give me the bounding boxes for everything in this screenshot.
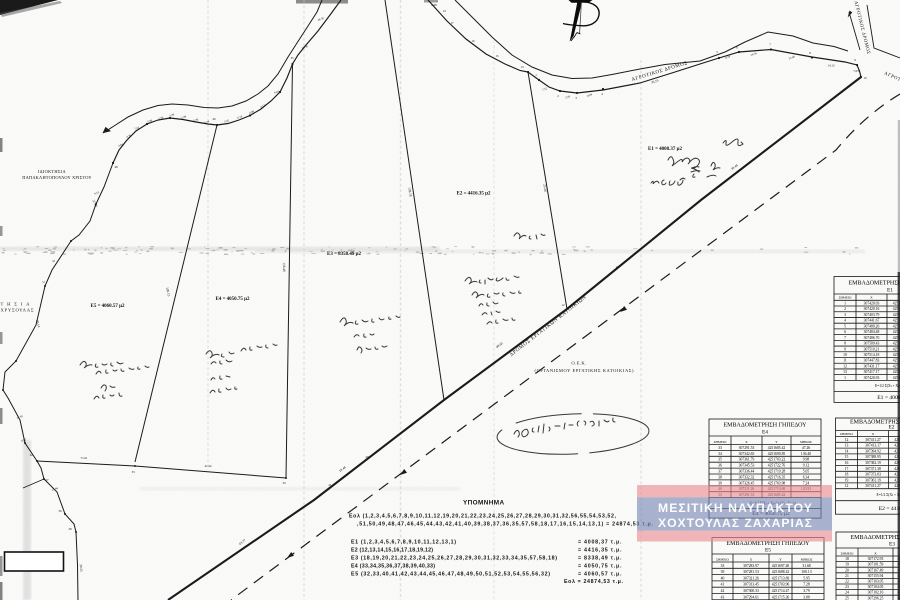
svg-text:307321.26: 307321.26 [743,576,759,580]
svg-text:ΣΗΜΕΙΟ: ΣΗΜΕΙΟ [839,296,852,300]
svg-text:Ε2: Ε2 [889,425,895,431]
svg-text:(ΟΡΓΑΝΙΣΜΟΥ ΕΡΓΑΤΙΚΗΣ ΚΑΤΟΙΚΙΑ: (ΟΡΓΑΝΙΣΜΟΥ ΕΡΓΑΤΙΚΗΣ ΚΑΤΟΙΚΙΑΣ) [535,368,635,373]
svg-text:33: 33 [718,446,722,450]
svg-text:= 4008,37 τ.μ.: = 4008,37 τ.μ. [578,540,622,546]
svg-text:19: 19 [845,478,849,482]
svg-text:Ε5 (32,33,40,41,42,43,44,45,46: Ε5 (32,33,40,41,42,43,44,45,46,47,48,49,… [351,572,550,578]
svg-text:ΧΟΧΤΟΥΛΑΣ ΖΑΧΑΡΙΑΣ: ΧΟΧΤΟΥΛΑΣ ΖΑΧΑΡΙΑΣ [658,516,813,530]
svg-text:12: 12 [561,303,565,307]
svg-text:= 8338,49 τ.μ.: = 8338,49 τ.μ. [578,556,622,562]
svg-text:7.24: 7.24 [803,481,810,485]
svg-text:21: 21 [328,483,332,487]
svg-text:307382.19: 307382.19 [865,461,881,465]
svg-text:71.61: 71.61 [81,456,88,460]
svg-text:4251703.98: 4251703.98 [768,481,786,485]
svg-text:4251685.42: 4251685.42 [768,446,786,450]
svg-text:307441.67: 307441.67 [864,319,880,323]
svg-text:Ε2 (12,13,14,15,16,17,18,19,12: Ε2 (12,13,14,15,16,17,18,19,12) [351,548,433,554]
svg-text:4251703.96: 4251703.96 [772,583,790,587]
svg-text:307514.18: 307514.18 [864,353,880,357]
svg-text:ΠΑΠΑΚΛΗΤΟΠΟΥΛΟΥ ΧΡΙΣΤΟΥ: ΠΑΠΑΚΛΗΤΟΠΟΥΛΟΥ ΧΡΙΣΤΟΥ [22,175,92,180]
svg-text:ΙΔΙΟΚΤΗΣΙΑ: ΙΔΙΟΚΤΗΣΙΑ [38,169,66,174]
svg-text:4251715.90: 4251715.90 [893,353,900,357]
svg-text:307103.05: 307103.05 [868,580,884,584]
svg-text:40: 40 [721,576,725,580]
svg-text:100.13: 100.13 [801,570,811,574]
svg-text:4251648.22: 4251648.22 [894,478,900,482]
svg-text:307420.03: 307420.03 [864,302,880,306]
svg-text:2: 2 [844,307,846,311]
svg-text:4251722.76: 4251722.76 [768,464,786,468]
svg-text:4251715.36: 4251715.36 [772,595,790,599]
svg-text:Εολ = 24874,53 τ.μ.: Εολ = 24874,53 τ.μ. [564,579,624,585]
svg-text:Ε=1/2 Σ(Χι + Χι+1)·(Υι - Υι+1): Ε=1/2 Σ(Χι + Χι+1)·(Υι - Υι+1) [875,384,900,388]
svg-text:307313.45: 307313.45 [743,583,759,587]
svg-text:4251697.40: 4251697.40 [772,564,790,568]
svg-text:5.05: 5.05 [803,470,810,474]
svg-text:40: 40 [212,117,216,121]
svg-text:4251650.21: 4251650.21 [893,359,900,363]
svg-text:307361.79: 307361.79 [739,458,755,462]
svg-text:20: 20 [845,568,849,572]
svg-text:11: 11 [616,265,619,269]
svg-text:4251703.17: 4251703.17 [894,461,900,465]
svg-text:15: 15 [845,455,849,459]
svg-text:1: 1 [844,302,846,306]
svg-text:ΧΡΥΣΟΥΛΑΣ: ΧΡΥΣΟΥΛΑΣ [1,308,34,313]
svg-text:34: 34 [718,452,722,456]
svg-text:= 4416,35 τ.μ.: = 4416,35 τ.μ. [578,548,622,554]
svg-text:57: 57 [45,478,49,482]
svg-text:37: 37 [718,470,722,474]
svg-text:4251712.45: 4251712.45 [893,302,900,306]
svg-text:307510.21: 307510.21 [864,347,880,351]
svg-text:12: 12 [845,484,849,488]
svg-text:307345.53: 307345.53 [739,464,755,468]
svg-text:4251711.88: 4251711.88 [893,330,900,334]
svg-text:Ε3 = 8358.49 μ2: Ε3 = 8358.49 μ2 [327,252,362,257]
svg-text:Ε1 (1,2,3,4,5,6,7,8,9,10,11,12: Ε1 (1,2,3,4,5,6,7,8,9,10,11,12,13,1) [351,540,456,546]
svg-text:35: 35 [718,458,722,462]
svg-text:4251713.69: 4251713.69 [772,576,790,580]
svg-text:ΕΜΒΑΔΟΜΕΤΡΗΣΗ ΓΗΠΕΔΟΥ: ΕΜΒΑΔΟΜΕΤΡΗΣΗ ΓΗΠΕΔΟΥ [851,535,900,541]
svg-text:ΣΗΜΕΙΟ: ΣΗΜΕΙΟ [716,557,729,561]
svg-text:32: 32 [29,453,33,457]
svg-text:307361.19: 307361.19 [865,478,881,482]
svg-text:4251714.47: 4251714.47 [772,589,790,593]
svg-text:307102.16: 307102.16 [868,591,884,595]
svg-text:ΣΗΜΕΙΟ: ΣΗΜΕΙΟ [841,551,854,555]
svg-text:5: 5 [844,324,846,328]
svg-text:,51,50,49,48,47,46,45,44,43,42: ,51,50,49,48,47,46,45,44,43,42,41,40,39,… [357,522,654,528]
svg-text:6.34: 6.34 [803,475,810,479]
svg-text:Ε4 (33,34,35,36,37,38,39,40,33: Ε4 (33,34,35,36,37,38,39,40,33) [351,564,435,570]
svg-text:= 4060,57 τ.μ.: = 4060,57 τ.μ. [578,572,622,578]
svg-text:Ε1: Ε1 [887,287,893,293]
svg-text:4251719.28: 4251719.28 [768,470,786,474]
svg-text:4251687.44: 4251687.44 [894,449,900,453]
svg-text:ΕΜΒΑΔΟΜΕΤΡΗΣΗ ΓΗΠΕΔΟΥ: ΕΜΒΑΔΟΜΕΤΡΗΣΗ ΓΗΠΕΔΟΥ [727,541,811,547]
svg-text:3.88: 3.88 [803,595,810,599]
svg-text:307332.32: 307332.32 [739,475,755,479]
svg-text:ΜΗΚΟΣ: ΜΗΚΟΣ [801,557,813,561]
svg-text:24: 24 [845,591,849,595]
svg-text:12: 12 [845,438,849,442]
svg-text:17: 17 [450,21,454,25]
svg-text:7: 7 [844,336,846,340]
svg-text:4251703.22: 4251703.22 [768,458,786,462]
svg-text:ΜΗΚΟΣ: ΜΗΚΟΣ [800,440,812,444]
svg-text:34: 34 [282,481,286,485]
svg-text:307300.33: 307300.33 [743,589,759,593]
svg-text:48: 48 [114,165,118,169]
svg-text:ΜΕΣΙΤΙΚΗ ΝΑΥΠΑΚΤΟΥ: ΜΕΣΙΤΙΚΗ ΝΑΥΠΑΚΤΟΥ [658,501,813,515]
svg-text:17: 17 [845,467,849,471]
svg-text:22: 22 [845,580,849,584]
svg-text:4251710.43: 4251710.43 [893,336,900,340]
svg-text:56: 56 [58,509,62,513]
svg-text:4251721.07: 4251721.07 [894,473,900,477]
svg-text:307403.79: 307403.79 [864,313,880,317]
svg-text:18: 18 [845,557,849,561]
svg-text:12: 12 [843,364,847,368]
svg-text:4251669.96: 4251669.96 [894,444,900,448]
svg-text:4251641.97: 4251641.97 [894,438,900,442]
svg-text:307417.17: 307417.17 [864,370,880,374]
svg-text:307342.65: 307342.65 [739,452,755,456]
svg-text:21: 21 [845,574,849,578]
svg-text:307104.05: 307104.05 [868,585,884,589]
svg-text:19: 19 [845,563,849,567]
svg-text:Ε5 = 4060.57 μ2: Ε5 = 4060.57 μ2 [91,304,126,309]
svg-text:307413.17: 307413.17 [865,444,881,448]
svg-text:Ε2 = 4416.35 μ2: Ε2 = 4416.35 μ2 [457,192,492,197]
svg-text:4251654.36: 4251654.36 [893,364,900,368]
svg-text:307191.59: 307191.59 [868,563,884,567]
svg-text:307411.27: 307411.27 [865,484,881,488]
svg-text:4251716.83: 4251716.83 [893,347,900,351]
svg-text:11: 11 [843,359,847,363]
svg-text:14: 14 [442,9,446,13]
svg-text:3.79: 3.79 [803,589,810,593]
svg-text:4251696.37: 4251696.37 [894,455,900,459]
svg-text:33: 33 [721,564,725,568]
svg-text:4251709.63: 4251709.63 [893,307,900,311]
svg-text:307431.17: 307431.17 [864,364,880,368]
svg-text:2.68: 2.68 [431,3,437,7]
svg-text:23: 23 [845,585,849,589]
svg-text:38: 38 [718,475,722,479]
svg-text:ΕΜΒΑΔΟΜΕΤΡΗΣΗ ΓΗΠΕΔΟΥ: ΕΜΒΑΔΟΜΕΤΡΗΣΗ ΓΗΠΕΔΟΥ [724,423,808,429]
svg-text:25: 25 [845,596,849,600]
svg-text:307411.27: 307411.27 [865,438,881,442]
svg-text:4251671.03: 4251671.03 [893,370,900,374]
svg-text:Ο.Ε.Κ.: Ο.Ε.Κ. [571,361,586,366]
svg-text:307294.61: 307294.61 [743,595,759,599]
svg-text:39: 39 [718,481,722,485]
svg-text:35: 35 [290,56,294,60]
svg-text:16: 16 [845,461,849,465]
svg-text:Ε3 (18,19,20,21,22,23,24,25,26: Ε3 (18,19,20,21,22,23,24,25,26,27,28,29,… [351,556,557,562]
svg-text:13: 13 [520,65,524,69]
svg-text:307373.03: 307373.03 [865,473,881,477]
svg-text:Ε1 = 4008.37 μ2: Ε1 = 4008.37 μ2 [648,147,683,152]
svg-text:28: 28 [68,527,72,531]
svg-text:Εολ (1,2,3,4,5,6,7,8,9,10,11,1: Εολ (1,2,3,4,5,6,7,8,9,10,11,12,19,20,21… [349,514,617,520]
svg-text:4: 4 [844,319,846,323]
svg-text:Ε5: Ε5 [765,548,771,554]
svg-text:5.95: 5.95 [803,576,810,580]
svg-text:307447.83: 307447.83 [864,359,880,363]
svg-text:Ε4 = 4050.75 μ2: Ε4 = 4050.75 μ2 [216,297,251,302]
svg-text:307296.25: 307296.25 [868,596,884,600]
svg-text:307291.53: 307291.53 [739,446,755,450]
svg-text:307336.44: 307336.44 [739,470,755,474]
svg-text:42: 42 [721,589,725,593]
svg-text:9: 9 [844,347,846,351]
svg-text:33: 33 [131,470,135,474]
svg-text:8: 8 [844,342,846,346]
svg-text:4251716.35: 4251716.35 [768,475,786,479]
svg-text:307486.70: 307486.70 [864,336,880,340]
svg-text:307167.49: 307167.49 [868,568,884,572]
svg-text:307388.95: 307388.95 [865,455,881,459]
svg-text:3: 3 [844,313,846,317]
svg-text:307326.45: 307326.45 [739,481,755,485]
svg-text:307281.53: 307281.53 [743,570,759,574]
svg-text:307394.92: 307394.92 [865,449,881,453]
svg-text:4251712.45: 4251712.45 [893,376,900,380]
svg-text:31.68: 31.68 [802,564,810,568]
svg-text:ΥΠΟΜΝΗΜΑ: ΥΠΟΜΝΗΜΑ [463,500,505,507]
svg-text:ΣΗΜΕΙΟ: ΣΗΜΕΙΟ [714,440,727,444]
svg-text:Ε3: Ε3 [889,542,895,548]
svg-text:Ε2 = 4416.35 μ2: Ε2 = 4416.35 μ2 [879,506,900,512]
svg-text:4251717.53: 4251717.53 [893,324,900,328]
svg-text:6: 6 [844,330,846,334]
svg-text:43: 43 [721,595,725,599]
svg-text:307172.93: 307172.93 [868,557,884,561]
svg-text:Ε4: Ε4 [762,429,768,435]
svg-text:307509.43: 307509.43 [864,342,880,346]
svg-text:41: 41 [721,583,725,587]
svg-text:4251690.85: 4251690.85 [768,452,786,456]
svg-text:4251717.45: 4251717.45 [893,319,900,323]
svg-text:Ε=1/2 Σ(Χι + Χι+1)·(Υι - Υι+1): Ε=1/2 Σ(Χι + Χι+1)·(Υι - Υι+1) [877,493,900,497]
svg-text:36: 36 [718,464,722,468]
svg-text:307155.94: 307155.94 [868,574,884,578]
svg-text:9.98: 9.98 [803,458,810,462]
svg-text:138.48: 138.48 [282,262,286,272]
svg-text:10: 10 [863,76,867,80]
svg-text:4251717.61: 4251717.61 [893,342,900,346]
svg-text:41.24: 41.24 [205,464,212,468]
svg-text:18: 18 [845,473,849,477]
svg-text:ΕΜΒΑΔΟΜΕΤΡΗΣΗ ΓΗΠΕΔΟΥ: ΕΜΒΑΔΟΜΕΤΡΗΣΗ ΓΗΠΕΔΟΥ [849,280,900,286]
svg-text:4251717.28: 4251717.28 [893,313,900,317]
svg-text:9.12: 9.12 [803,464,810,468]
svg-text:14: 14 [845,449,849,453]
svg-text:307283.97: 307283.97 [743,564,759,568]
svg-text:307371.38: 307371.38 [865,467,881,471]
svg-text:Ε1 = 4008.37 μ2: Ε1 = 4008.37 μ2 [877,395,900,401]
svg-text:307420.03: 307420.03 [864,376,880,380]
svg-text:20: 20 [365,455,369,459]
svg-text:13: 13 [843,370,847,374]
svg-text:39: 39 [721,570,725,574]
svg-text:16: 16 [471,39,475,43]
svg-text:4251688.42: 4251688.42 [772,570,790,574]
svg-text:10: 10 [843,353,847,357]
svg-text:= 4050,75 τ.μ.: = 4050,75 τ.μ. [578,564,622,570]
svg-text:14.13: 14.13 [828,64,835,68]
svg-text:4251710.94: 4251710.94 [894,467,900,471]
svg-text:307484.48: 307484.48 [864,330,880,334]
svg-text:1: 1 [844,376,846,380]
svg-text:307480.26: 307480.26 [864,324,880,328]
svg-text:13: 13 [845,444,849,448]
svg-text:7.28: 7.28 [803,583,810,587]
svg-text:30.35: 30.35 [79,564,84,572]
svg-text:15: 15 [495,54,499,58]
svg-text:47.26: 47.26 [802,446,810,450]
svg-text:7.03: 7.03 [853,69,859,73]
svg-text:307420.16: 307420.16 [864,307,880,311]
svg-text:136.40: 136.40 [801,452,811,456]
svg-text:4251641.97: 4251641.97 [894,484,900,488]
svg-text:ΣΗΜΕΙΟ: ΣΗΜΕΙΟ [840,432,853,436]
